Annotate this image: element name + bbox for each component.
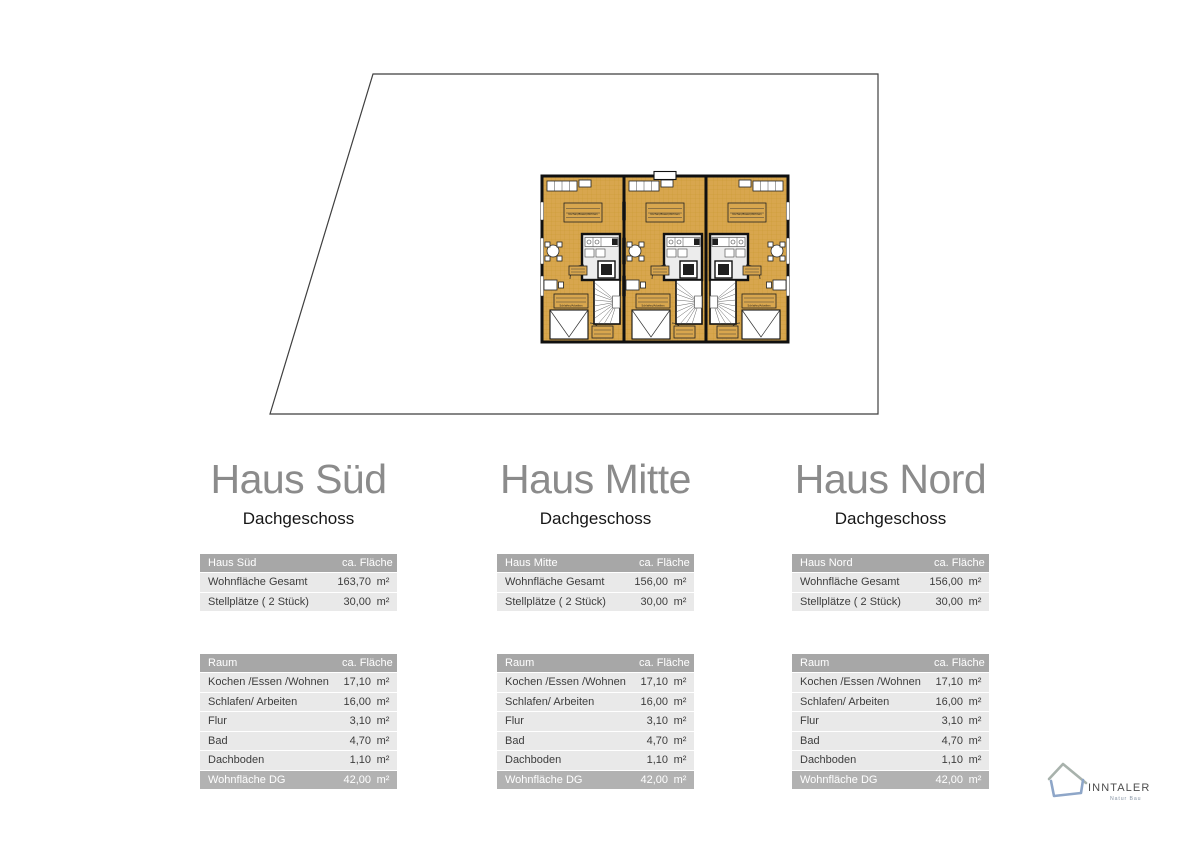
row-label: Flur [792,715,923,727]
rooms-header-title: Raum [792,657,934,669]
column-haus-mitte: Haus Mitte Dachgeschoss Haus Mitte ca. F… [497,458,694,803]
column-haus-sued: Haus Süd Dachgeschoss Haus Süd ca. Fläch… [200,458,397,803]
table-row: Dachboden 1,10 m² [792,750,989,770]
row-unit: m² [668,676,694,688]
table-row: Flur 3,10 m² [497,711,694,731]
summary-header-area: ca. Fläche [639,557,694,569]
row-value: 16,00 [331,696,371,708]
row-unit: m² [963,596,989,608]
house-outline-icon [1049,764,1086,796]
row-value: 156,00 [923,576,963,588]
row-unit: m² [371,774,397,786]
floor-subtitle: Dachgeschoss [497,509,694,529]
row-label: Bad [200,735,331,747]
row-unit: m² [963,774,989,786]
summary-table-header: Haus Mitte ca. Fläche [497,554,694,572]
row-label: Schlafen/ Arbeiten [792,696,923,708]
row-value: 42,00 [628,774,668,786]
summary-table-header: Haus Süd ca. Fläche [200,554,397,572]
table-row: Wohnfläche Gesamt 156,00 m² [792,572,989,592]
table-row: Kochen /Essen /Wohnen 17,10 m² [792,672,989,692]
summary-table: Haus Nord ca. Fläche Wohnfläche Gesamt 1… [792,554,989,611]
row-unit: m² [371,715,397,727]
row-unit: m² [963,754,989,766]
row-unit: m² [668,596,694,608]
rooms-table-header: Raum ca. Fläche [792,654,989,672]
table-row: Flur 3,10 m² [200,711,397,731]
rooms-table-header: Raum ca. Fläche [200,654,397,672]
row-value: 4,70 [628,735,668,747]
row-value: 16,00 [923,696,963,708]
row-label: Bad [792,735,923,747]
table-row: Schlafen/ Arbeiten 16,00 m² [200,692,397,712]
plan-room-label: Schlafen/Arbeiten [641,304,664,308]
table-row: Schlafen/ Arbeiten 16,00 m² [497,692,694,712]
row-unit: m² [371,754,397,766]
dormer [654,172,676,180]
row-value: 17,10 [923,676,963,688]
summary-header-title: Haus Süd [200,557,342,569]
summary-header-title: Haus Nord [792,557,934,569]
row-label: Stellplätze ( 2 Stück) [200,596,331,608]
row-label: Wohnfläche Gesamt [792,576,923,588]
row-unit: m² [963,696,989,708]
row-unit: m² [371,735,397,747]
row-unit: m² [371,596,397,608]
table-row: Stellplätze ( 2 Stück) 30,00 m² [200,592,397,612]
row-value: 30,00 [331,596,371,608]
summary-header-area: ca. Fläche [934,557,989,569]
company-logo: INNTALER Natur Bau [1042,758,1158,810]
row-value: 1,10 [923,754,963,766]
rooms-table: Raum ca. Fläche Kochen /Essen /Wohnen 17… [497,654,694,789]
table-row: Flur 3,10 m² [792,711,989,731]
summary-table-header: Haus Nord ca. Fläche [792,554,989,572]
row-label: Stellplätze ( 2 Stück) [497,596,628,608]
house-title: Haus Süd [200,458,397,500]
row-value: 4,70 [331,735,371,747]
plan-room-label: Schlafen/Arbeiten [559,304,582,308]
table-row: Stellplätze ( 2 Stück) 30,00 m² [497,592,694,612]
logo-tagline-text: Natur Bau [1110,796,1141,802]
table-footer-row: Wohnfläche DG 42,00 m² [497,770,694,790]
table-row: Wohnfläche Gesamt 163,70 m² [200,572,397,592]
row-label: Flur [497,715,628,727]
row-value: 30,00 [628,596,668,608]
row-value: 17,10 [628,676,668,688]
table-row: Kochen /Essen /Wohnen 17,10 m² [200,672,397,692]
row-value: 3,10 [628,715,668,727]
row-label: Wohnfläche DG [497,774,628,786]
summary-table: Haus Süd ca. Fläche Wohnfläche Gesamt 16… [200,554,397,611]
plan-room-label: Kochen/Essen/Wohnen [568,212,598,216]
rooms-header-title: Raum [200,657,342,669]
row-label: Wohnfläche DG [200,774,331,786]
row-value: 4,70 [923,735,963,747]
rooms-table-header: Raum ca. Fläche [497,654,694,672]
summary-header-title: Haus Mitte [497,557,639,569]
summary-header-area: ca. Fläche [342,557,397,569]
table-footer-row: Wohnfläche DG 42,00 m² [792,770,989,790]
row-label: Schlafen/ Arbeiten [497,696,628,708]
row-label: Wohnfläche Gesamt [200,576,331,588]
row-unit: m² [668,696,694,708]
table-row: Bad 4,70 m² [792,731,989,751]
row-value: 42,00 [923,774,963,786]
site-plan: Kochen/Essen/Wohnen Kochen/Essen/Wohnen … [250,55,900,425]
summary-table: Haus Mitte ca. Fläche Wohnfläche Gesamt … [497,554,694,611]
floor-subtitle: Dachgeschoss [200,509,397,529]
row-value: 30,00 [923,596,963,608]
attic-floor-plan: Kochen/Essen/Wohnen Kochen/Essen/Wohnen … [540,172,789,343]
row-value: 16,00 [628,696,668,708]
row-label: Kochen /Essen /Wohnen [497,676,628,688]
rooms-header-title: Raum [497,657,639,669]
column-haus-nord: Haus Nord Dachgeschoss Haus Nord ca. Flä… [792,458,989,803]
row-value: 17,10 [331,676,371,688]
table-row: Schlafen/ Arbeiten 16,00 m² [792,692,989,712]
row-label: Bad [497,735,628,747]
row-label: Wohnfläche DG [792,774,923,786]
table-row: Bad 4,70 m² [200,731,397,751]
row-unit: m² [371,696,397,708]
row-label: Stellplätze ( 2 Stück) [792,596,923,608]
row-label: Dachboden [792,754,923,766]
row-value: 42,00 [331,774,371,786]
row-value: 1,10 [331,754,371,766]
row-unit: m² [963,576,989,588]
row-unit: m² [668,754,694,766]
table-row: Dachboden 1,10 m² [200,750,397,770]
row-label: Wohnfläche Gesamt [497,576,628,588]
row-unit: m² [668,735,694,747]
table-row: Kochen /Essen /Wohnen 17,10 m² [497,672,694,692]
table-row: Bad 4,70 m² [497,731,694,751]
table-row: Wohnfläche Gesamt 156,00 m² [497,572,694,592]
row-unit: m² [963,735,989,747]
rooms-header-area: ca. Fläche [342,657,397,669]
row-unit: m² [963,676,989,688]
row-unit: m² [668,774,694,786]
row-label: Schlafen/ Arbeiten [200,696,331,708]
rooms-table: Raum ca. Fläche Kochen /Essen /Wohnen 17… [792,654,989,789]
row-value: 163,70 [331,576,371,588]
plan-room-label: Kochen/Essen/Wohnen [650,212,680,216]
row-unit: m² [371,576,397,588]
table-row: Stellplätze ( 2 Stück) 30,00 m² [792,592,989,612]
row-label: Flur [200,715,331,727]
row-value: 3,10 [331,715,371,727]
row-label: Kochen /Essen /Wohnen [200,676,331,688]
table-row: Dachboden 1,10 m² [497,750,694,770]
row-unit: m² [668,576,694,588]
plan-room-label: Kochen/Essen/Wohnen [732,212,762,216]
logo-brand-text: INNTALER [1088,782,1150,794]
rooms-header-area: ca. Fläche [639,657,694,669]
house-title: Haus Nord [792,458,989,500]
row-value: 1,10 [628,754,668,766]
row-value: 3,10 [923,715,963,727]
plan-room-label: Schlafen/Arbeiten [747,304,770,308]
table-footer-row: Wohnfläche DG 42,00 m² [200,770,397,790]
rooms-table: Raum ca. Fläche Kochen /Essen /Wohnen 17… [200,654,397,789]
row-value: 156,00 [628,576,668,588]
row-label: Dachboden [497,754,628,766]
row-label: Dachboden [200,754,331,766]
floor-subtitle: Dachgeschoss [792,509,989,529]
row-unit: m² [371,676,397,688]
row-label: Kochen /Essen /Wohnen [792,676,923,688]
row-unit: m² [668,715,694,727]
rooms-header-area: ca. Fläche [934,657,989,669]
brochure-page: Kochen/Essen/Wohnen Kochen/Essen/Wohnen … [0,0,1190,841]
house-title: Haus Mitte [497,458,694,500]
row-unit: m² [963,715,989,727]
